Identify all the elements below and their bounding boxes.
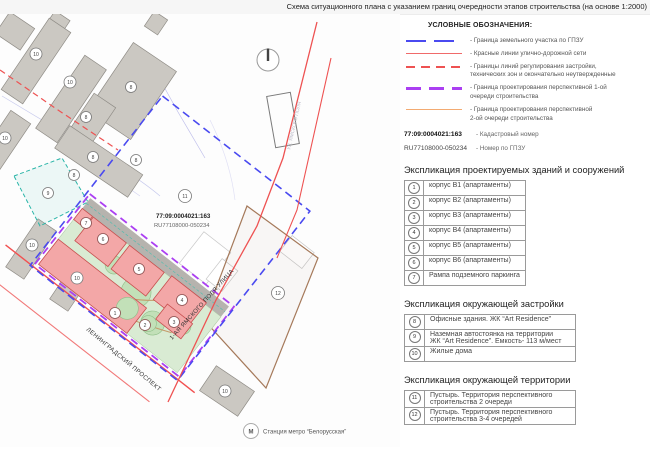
north-arrow: [257, 49, 279, 72]
svg-text:10: 10: [74, 276, 80, 282]
site-plan-drawing: ЛЕНИНГРАДСКИЙ ПРОСПЕКТ 1-АЯ ЯМСКОГО ПОЛЯ…: [0, 14, 400, 447]
legend-item-red-lines: - Красные линии улично-дорожной сети: [404, 50, 648, 59]
svg-text:6: 6: [102, 237, 105, 243]
page-title: Схема ситуационного плана с указанием гр…: [287, 2, 647, 11]
map-marker: 8: [131, 155, 142, 166]
map-marker: 12: [272, 287, 285, 300]
table-row: 1корпус В1 (апартаменты): [405, 180, 526, 195]
legend-item-gpzu-boundary: - Граница земельного участка по ГПЗУ: [404, 37, 648, 46]
map-marker: 9: [43, 188, 54, 199]
table-row: 9Наземная автостоянка на территорииЖК “A…: [405, 329, 576, 346]
surrounding-buildings-table: 8Офисные здания. ЖК “Art Residence” 9Наз…: [404, 314, 576, 362]
metro-icon-letter: М: [249, 430, 254, 436]
map-marker: 3: [169, 317, 180, 328]
legend-item-phase2-boundary: - Граница проектирования перспективной2-…: [404, 106, 648, 124]
map-marker: 8: [88, 152, 99, 163]
legend-item-regulation-lines: - Границы линий регулирования застройки,…: [404, 63, 648, 81]
surrounding-territory-table: 11Пустырь. Территория перспективногостро…: [404, 390, 576, 425]
page: { "title": "Схема ситуационного плана с …: [0, 0, 650, 447]
map-marker: 10: [26, 239, 38, 251]
map-cadastral-number: 77:09:0004021:163: [156, 213, 211, 220]
legend-line-orange-solid: [406, 109, 462, 111]
table-row: 12Пустырь. Территория перспективногостро…: [405, 407, 576, 424]
map-marker: 2: [140, 320, 151, 331]
table-row: 8Офисные здания. ЖК “Art Residence”: [405, 314, 576, 329]
map-marker: 10: [0, 132, 11, 144]
legend-panel: УСЛОВНЫЕ ОБОЗНАЧЕНИЯ: - Граница земельно…: [404, 18, 648, 425]
gpzu-number-row: RU77108000-050234 - Номер по ГПЗУ: [404, 145, 648, 152]
section-heading-projected: Экспликация проектируемых зданий и соору…: [404, 165, 648, 175]
map-marker: 5: [134, 264, 145, 275]
legend-line-red-dash: [406, 66, 462, 68]
map-marker: 8: [69, 170, 80, 181]
svg-text:10: 10: [29, 243, 35, 249]
table-row: 3корпус В3 (апартаменты): [405, 210, 526, 225]
svg-text:10: 10: [222, 389, 228, 395]
table-row: 11Пустырь. Территория перспективногостро…: [405, 390, 576, 407]
svg-text:10: 10: [33, 52, 39, 58]
svg-text:10: 10: [2, 136, 8, 142]
table-row: 4корпус В4 (апартаменты): [405, 225, 526, 240]
svg-text:8: 8: [73, 173, 76, 179]
map-marker: 4: [177, 295, 188, 306]
map-marker: 6: [98, 234, 109, 245]
svg-text:9: 9: [47, 191, 50, 197]
legend-heading: УСЛОВНЫЕ ОБОЗНАЧЕНИЯ:: [428, 22, 648, 29]
map-marker: 7: [81, 218, 92, 229]
map-marker: 1: [110, 308, 121, 319]
section-heading-surrounding-buildings: Экспликация окружающей застройки: [404, 299, 648, 309]
projected-buildings-table: 1корпус В1 (апартаменты) 2корпус В2 (апа…: [404, 180, 526, 286]
map-marker: 11: [179, 190, 192, 203]
svg-text:10: 10: [67, 80, 73, 86]
legend-line-purple-dash: [406, 87, 462, 90]
cadastral-number-row: 77:09:0004021:163 - Кадастровый номер: [404, 131, 648, 138]
legend-line-blue-dash: [406, 40, 462, 42]
table-row: 5корпус В5 (апартаменты): [405, 240, 526, 255]
map-marker: 8: [81, 112, 92, 123]
map-marker: 10: [30, 48, 42, 60]
svg-text:1: 1: [114, 311, 117, 317]
table-row: 7Рампа подземного паркинга: [405, 270, 526, 285]
metro-station-label: Станция метро “Белорусская”: [263, 430, 346, 436]
svg-text:8: 8: [92, 155, 95, 161]
section-heading-surrounding-territory: Экспликация окружающей территории: [404, 375, 648, 385]
site-plan-map: ЛЕНИНГРАДСКИЙ ПРОСПЕКТ 1-АЯ ЯМСКОГО ПОЛЯ…: [0, 14, 400, 447]
svg-text:11: 11: [182, 194, 187, 200]
svg-text:2: 2: [144, 323, 147, 329]
territory-12-boundary: [204, 206, 318, 388]
metro-station: М Станция метро “Белорусская”: [244, 424, 347, 439]
svg-text:5: 5: [138, 267, 141, 273]
legend-line-red-solid: [406, 53, 462, 55]
svg-text:12: 12: [275, 291, 281, 297]
legend-item-phase1-boundary: - Граница проектирования перспективной 1…: [404, 84, 648, 102]
street-label-yamskogo-faint: УЛ. ЯМСКОГО ПОЛЯ: [286, 101, 303, 151]
svg-text:8: 8: [85, 115, 88, 121]
map-marker: 10: [64, 76, 76, 88]
map-marker: 8: [126, 82, 137, 93]
svg-text:3: 3: [173, 320, 176, 326]
svg-text:7: 7: [85, 221, 88, 227]
svg-text:8: 8: [135, 158, 138, 164]
map-marker: 10: [219, 385, 231, 397]
map-gpzu-number: RU77108000-050234: [154, 223, 210, 229]
svg-text:8: 8: [130, 85, 133, 91]
table-row: 10Жилые дома: [405, 346, 576, 361]
table-row: 2корпус В2 (апартаменты): [405, 195, 526, 210]
map-marker: 10: [71, 272, 83, 284]
table-row: 6корпус В6 (апартаменты): [405, 255, 526, 270]
svg-text:4: 4: [181, 298, 184, 304]
